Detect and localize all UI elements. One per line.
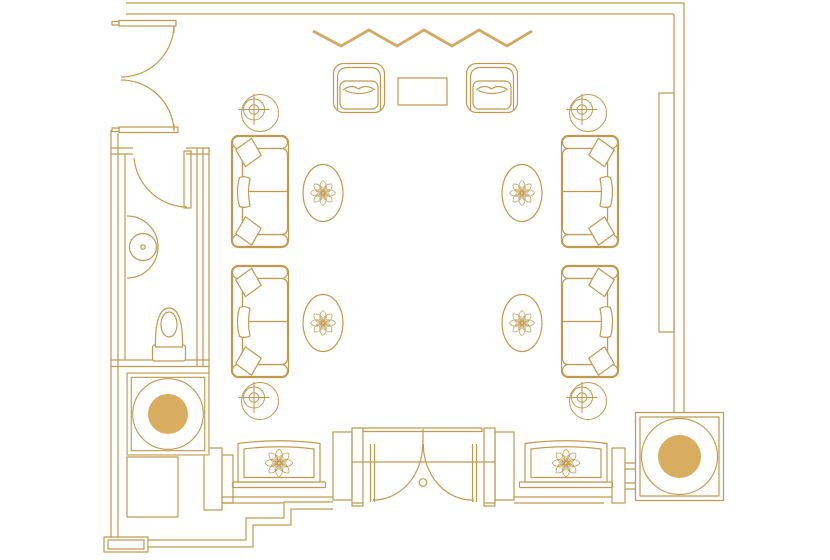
door-swing-arc: [121, 80, 174, 130]
wall-top: [126, 3, 684, 14]
cocktail-table: [398, 78, 447, 105]
window-bench-right: [520, 441, 613, 488]
round-side-table-left: [127, 373, 209, 455]
oval-side-table-lower-right: [502, 295, 542, 352]
oval-side-table-upper-left: [303, 165, 343, 222]
pilaster-right: [659, 93, 674, 332]
sofa-upper-right: [562, 136, 619, 248]
drapery-zigzag: [313, 30, 532, 46]
sink-basin: [127, 216, 158, 278]
main-entry-door: [352, 428, 495, 503]
wall-right: [674, 3, 684, 413]
powder-room-door-leaf: [184, 151, 191, 208]
armchair-top-right: [467, 64, 518, 113]
door-swing-arc: [373, 444, 423, 500]
ceiling-speaker-upper-left: [239, 94, 279, 132]
ceiling-speaker-upper-right: [567, 94, 607, 132]
wall-under-right-bench: [514, 497, 612, 503]
round-side-table-right: [636, 413, 724, 501]
armchair-top-left: [334, 64, 385, 113]
sofa-lower-left: [232, 266, 289, 378]
floor-plan-canvas: [0, 0, 830, 560]
ceiling-speaker-lower-left: [239, 382, 279, 420]
door-knob: [419, 479, 427, 487]
ceiling-speaker-lower-right: [567, 382, 607, 420]
door-swing-arc: [121, 27, 174, 77]
wall-left: [111, 130, 118, 538]
door-swing-arc: [134, 158, 187, 207]
wall-foot-bottom-left: [104, 537, 148, 552]
sofa-lower-right: [562, 266, 619, 378]
sofa-upper-left: [232, 136, 289, 248]
oval-side-table-upper-right: [502, 165, 542, 222]
oval-side-table-lower-left: [303, 295, 343, 352]
closet: [127, 457, 178, 517]
window-bench-left: [233, 441, 326, 488]
floor-plan-drawing: [0, 0, 830, 560]
door-swing-arc: [423, 444, 474, 500]
toilet: [153, 308, 186, 361]
furniture-layer: [127, 30, 724, 501]
entry-double-door: [112, 21, 178, 133]
wall-bottom-left-steps: [148, 502, 333, 547]
